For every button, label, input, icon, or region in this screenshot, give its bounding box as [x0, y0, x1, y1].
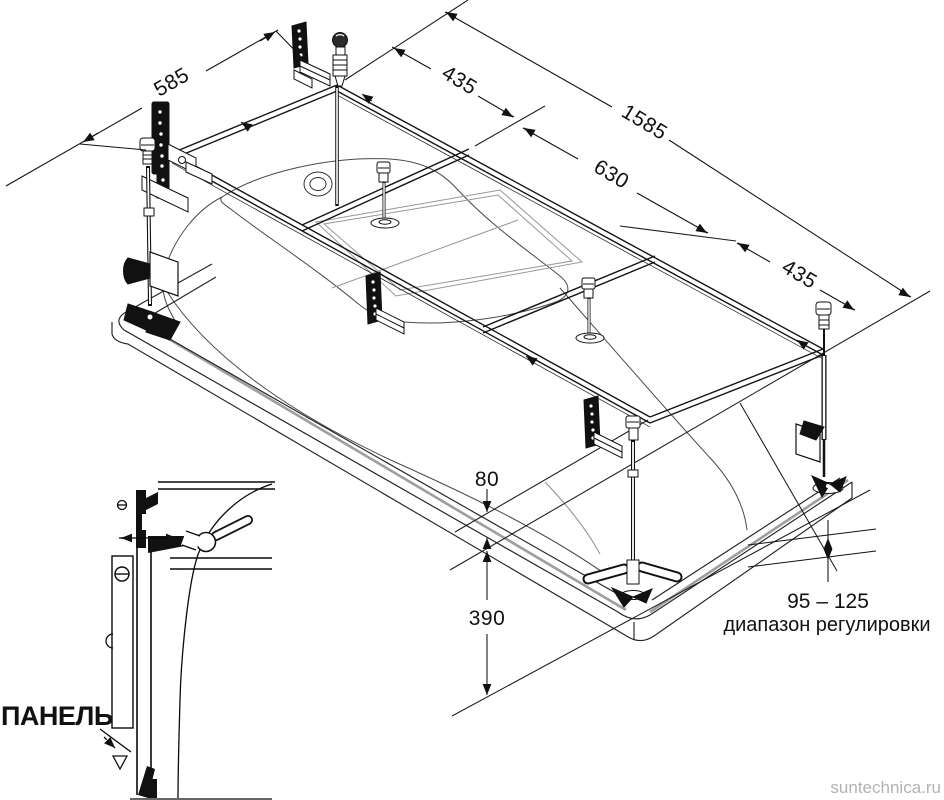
dim-390: 390: [469, 607, 506, 630]
dim-435-left: 435: [438, 61, 481, 100]
bracket-top: [292, 22, 330, 88]
dim-80: 80: [475, 468, 499, 491]
right-corner-leg: [796, 302, 846, 497]
drain-icon: [304, 172, 332, 196]
tub-rim-platform: [112, 264, 852, 641]
top-corner-leg: [333, 33, 348, 207]
panel-mounting-detail: [100, 482, 275, 799]
bathtub-shell: [163, 159, 747, 576]
middle-leg-drain: [371, 162, 399, 228]
dimension-lines: [6, 12, 911, 695]
rail-fastener-arrows: [241, 94, 806, 362]
left-corner-leg: [124, 102, 213, 340]
dim-630: 630: [590, 155, 633, 194]
bracket-front-left: [366, 272, 404, 334]
dim-1585: 1585: [618, 100, 672, 145]
adjust-range-caption: диапазон регулировки: [723, 614, 930, 636]
panel-label: ПАНЕЛЬ: [1, 701, 113, 731]
diagram-canvas: 585 435 1585 630 435 80 390 95 – 125 диа…: [0, 0, 944, 800]
support-frame-rails: [172, 85, 823, 427]
adjust-range-value: 95 – 125: [787, 590, 869, 613]
dim-435-right: 435: [778, 255, 821, 294]
adjustment-range-annotation: [748, 520, 876, 582]
bracket-front-right: [584, 396, 622, 458]
watermark: suntechnica.ru: [830, 778, 941, 797]
dim-585: 585: [150, 63, 193, 101]
bathtub-frame-installation-diagram: 585 435 1585 630 435 80 390 95 – 125 диа…: [0, 0, 944, 800]
hollow-arrow-icon: [113, 756, 127, 769]
